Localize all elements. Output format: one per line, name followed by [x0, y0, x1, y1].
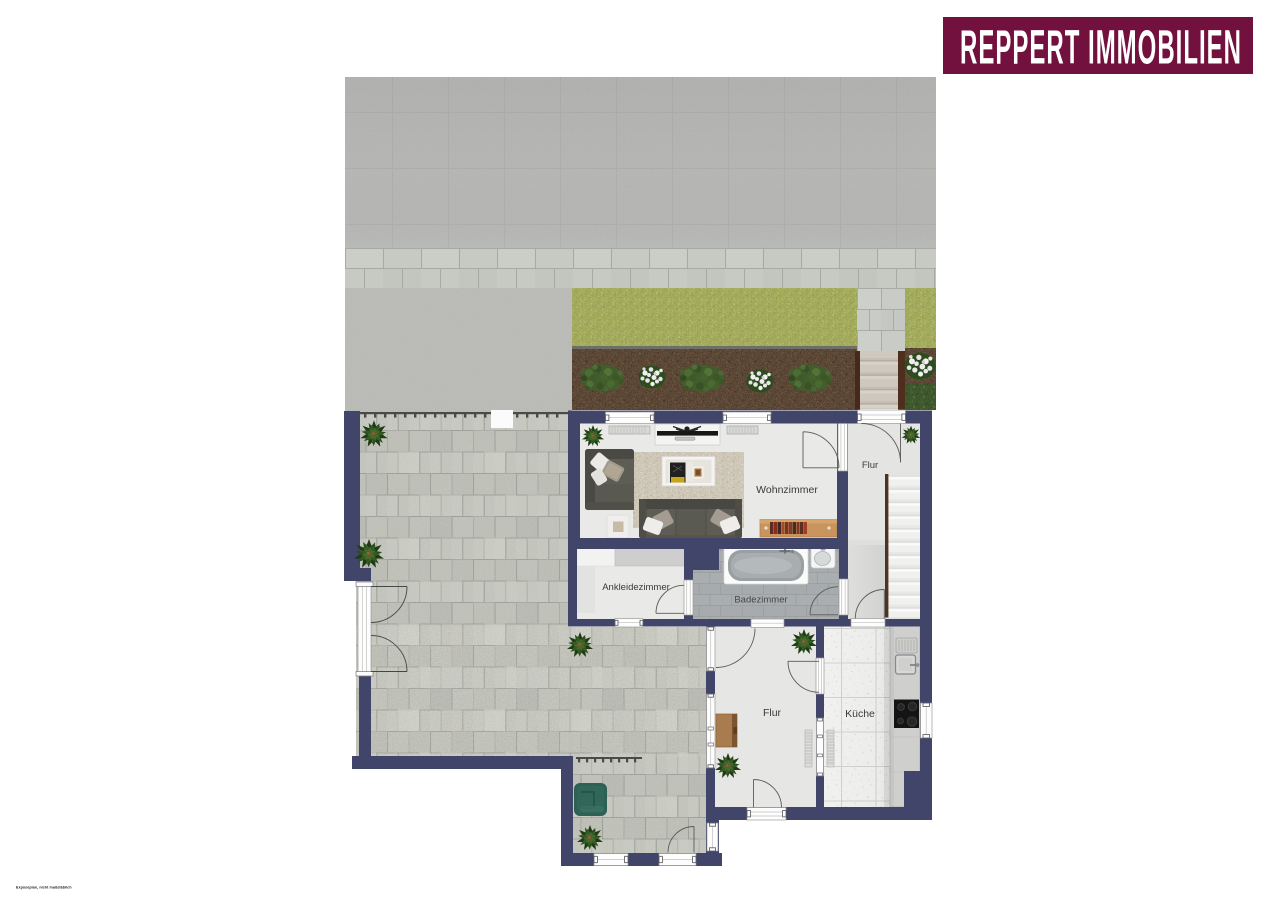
- svg-text:Küche: Küche: [845, 708, 875, 720]
- svg-text:Flur: Flur: [862, 460, 878, 471]
- svg-text:REPPERT IMMOBILIEN: REPPERT IMMOBILIEN: [960, 22, 1242, 75]
- svg-text:Flur: Flur: [763, 707, 782, 719]
- svg-text:Ankleidezimmer: Ankleidezimmer: [602, 582, 670, 593]
- svg-text:Exposéplan, nicht maßstäblich: Exposéplan, nicht maßstäblich: [16, 886, 72, 890]
- svg-text:Badezimmer: Badezimmer: [734, 595, 787, 606]
- svg-text:Wohnzimmer: Wohnzimmer: [756, 484, 818, 496]
